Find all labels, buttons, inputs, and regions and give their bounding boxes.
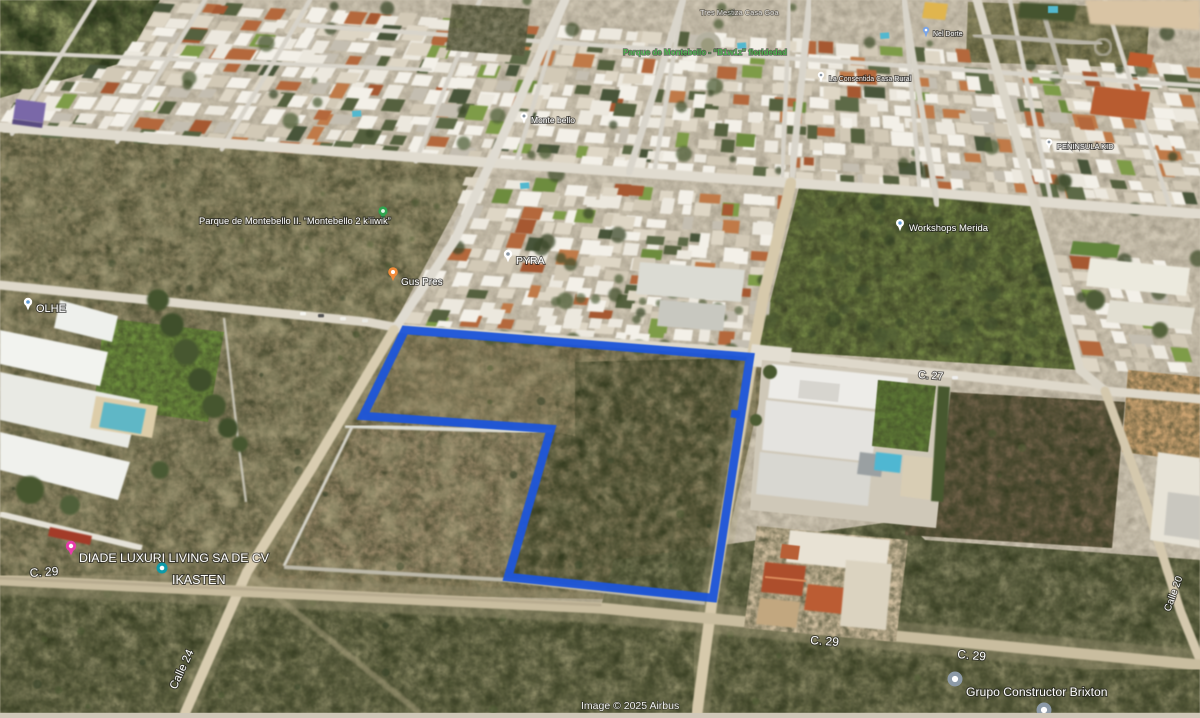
svg-text:Parque de Montebello - “B1w1z”: Parque de Montebello - “B1w1z” florideda… — [623, 48, 787, 57]
svg-text:PYRA: PYRA — [516, 255, 545, 267]
svg-text:La Consentida Casa Rural: La Consentida Casa Rural — [829, 76, 912, 83]
svg-text:PENINSULA KID: PENINSULA KID — [1057, 142, 1114, 151]
svg-text:C. 29: C. 29 — [810, 633, 840, 649]
svg-text:Monte bello: Monte bello — [531, 115, 575, 125]
svg-text:C. 29: C. 29 — [957, 647, 987, 663]
svg-text:C. 27: C. 27 — [918, 369, 944, 383]
svg-text:C. 29: C. 29 — [29, 564, 59, 580]
svg-text:Nel Dorte: Nel Dorte — [933, 31, 963, 38]
svg-text:Parque de Montebello II. “Mont: Parque de Montebello II. “Montebello 2 k… — [199, 215, 391, 226]
svg-text:IKASTEN: IKASTEN — [172, 573, 226, 587]
svg-text:Gus Pres: Gus Pres — [401, 277, 443, 288]
svg-text:Tres Mestiza Casa Goa: Tres Mestiza Casa Goa — [700, 8, 779, 17]
svg-text:DIADE LUXURI LIVING SA DE CV: DIADE LUXURI LIVING SA DE CV — [79, 551, 270, 565]
svg-text:Workshops Merida: Workshops Merida — [909, 223, 989, 234]
svg-text:Grupo Constructor Brixton: Grupo Constructor Brixton — [966, 685, 1108, 699]
svg-text:Image © 2025 Airbus: Image © 2025 Airbus — [581, 700, 679, 712]
svg-text:OLHE: OLHE — [36, 303, 66, 315]
